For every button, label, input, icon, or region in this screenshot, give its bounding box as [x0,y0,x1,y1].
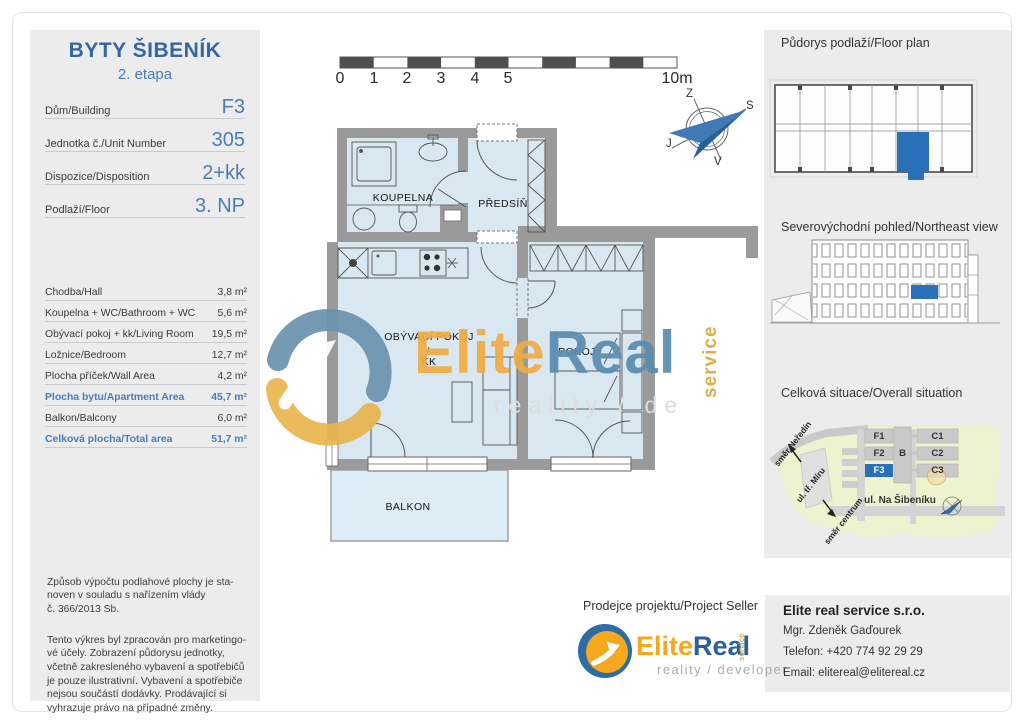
field-row: Jednotka č./Unit Number 305 [45,119,245,152]
field-value: 305 [212,130,245,150]
field-row: Dům/Building F3 [45,86,245,119]
field-label: Podlaží/Floor [45,204,110,216]
building-label-c1: C1 [917,431,958,442]
compass-letter-north: S [746,100,754,112]
contact-person: Mgr. Zdeněk Gaďourek [783,625,901,637]
section-title-elevation: Severovýchodní pohled/Northeast view [781,220,998,234]
scale-tick: 0 [330,70,350,88]
area-row: Koupelna + WC/Bathroom + WC5,6 m² [45,301,247,322]
company-name: Elite real service s.r.o. [783,603,925,618]
building-label-f3: F3 [865,465,893,476]
contact-phone: Telefon: +420 774 92 29 29 [783,646,923,658]
disclaimer-paragraph: Tento výkres byl zpracován pro marketing… [47,634,253,715]
disclaimer-paragraph: Způsob výpočtu podlahové plochy je sta- … [47,576,253,617]
area-row-grand-total: Celková plocha/Total area51,7 m² [45,427,247,448]
building-floorplan-thumb [770,80,977,180]
compass-letter-south: J [666,138,672,150]
field-row: Dispozice/Disposition 2+kk [45,152,245,185]
area-row: Chodba/Hall3,8 m² [45,280,247,301]
disclaimer: Způsob výpočtu podlahové plochy je sta- … [47,562,253,724]
field-value: 2+kk [202,163,245,183]
seller-heading: Prodejce projektu/Project Seller [583,599,758,613]
scale-tick: 3 [431,70,451,88]
page-subtitle: 2. etapa [30,66,260,83]
compass-letter-east: V [714,156,722,168]
area-table: Chodba/Hall3,8 m² Koupelna + WC/Bathroom… [45,280,247,448]
field-label: Jednotka č./Unit Number [45,138,166,150]
floorplan-sheet: BYTY ŠIBENÍK 2. etapa Dům/Building F3 Je… [0,0,1024,724]
highlighted-unit [897,132,929,172]
room-label-bathroom: KOUPELNA [363,192,443,204]
building-label-c3: C3 [917,465,958,476]
area-row: Balkon/Balcony6,0 m² [45,406,247,427]
field-row: Podlaží/Floor 3. NP [45,185,245,218]
shaft [444,210,461,221]
room-label-balcony: BALKON [368,501,448,513]
page-title: BYTY ŠIBENÍK [30,39,260,63]
northeast-elevation-thumb [770,240,1000,323]
building-label-f2: F2 [865,448,893,459]
scale-tick: 2 [397,70,417,88]
seller-logo-wordmark: EliteReal [636,631,750,662]
field-label: Dispozice/Disposition [45,171,150,183]
watermark-service: service [700,325,722,398]
entrance-door [477,124,517,141]
watermark-brand: EliteReal [414,318,676,387]
building-label-c2: C2 [917,448,958,459]
highlighted-unit-elevation [911,285,938,299]
field-value: F3 [222,97,245,117]
section-title-floorplan: Půdorys podlaží/Floor plan [781,36,930,50]
compass-icon [669,99,746,160]
scale-tick: 5 [498,70,518,88]
room-label-hall: PŘEDSÍŇ [473,198,533,210]
unit-fields: Dům/Building F3 Jednotka č./Unit Number … [45,86,245,218]
street-label: ul. Na Šibeníku [855,495,945,506]
compass-letter-west: Z [686,88,693,100]
seller-logo-tagline: reality / developer [657,662,788,677]
field-value: 3. NP [195,196,245,216]
seller-logo-service: service [737,633,746,661]
scale-bar [340,57,677,68]
building-label-b: B [894,448,911,459]
building-label-f1: F1 [865,431,893,442]
area-row: Plocha příček/Wall Area4,2 m² [45,364,247,385]
scale-tick: 1 [364,70,384,88]
area-row: Ložnice/Bedroom12,7 m² [45,343,247,364]
section-title-situation: Celková situace/Overall situation [781,386,962,400]
contact-email: Email: elitereal@elitereal.cz [783,667,925,679]
field-label: Dům/Building [45,105,110,117]
scale-end-label: 10m [655,70,699,88]
scale-tick: 4 [465,70,485,88]
area-row: Obývací pokoj + kk/Living Room19,5 m² [45,322,247,343]
seller-logo-icon [578,624,632,678]
area-row-apartment-total: Plocha bytu/Apartment Area45,7 m² [45,385,247,406]
watermark-tagline: reality / de [494,392,684,419]
